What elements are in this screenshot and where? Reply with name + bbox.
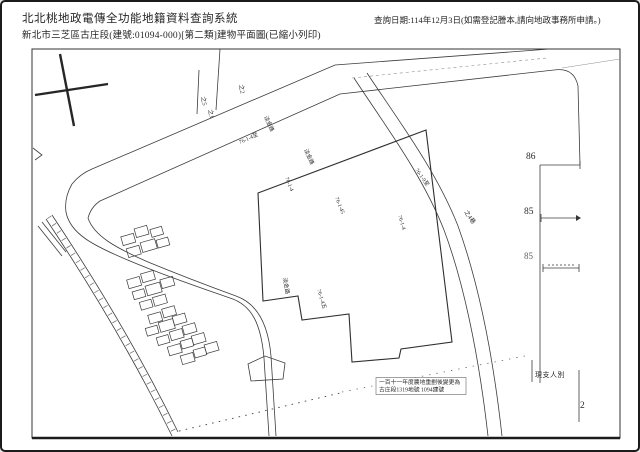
lot-number: 85 <box>524 251 534 261</box>
left-road <box>66 184 276 436</box>
building-cluster-c <box>141 297 220 372</box>
boundary-note: 現支人別 <box>535 370 565 379</box>
dotted-boundary <box>179 355 530 431</box>
street-name-label: 淡金路 <box>262 114 276 133</box>
small-parcel-outline <box>248 356 285 381</box>
main-parcel-outline <box>258 130 452 362</box>
address-range-label: 76-1-4至 <box>238 131 260 146</box>
street-name-label: 淡金路 <box>281 277 292 295</box>
replot-annotation: 一百十一年度農地重劃後變更為 古庄段1319地號 1094建號 <box>376 378 466 395</box>
address-label: 之5 <box>199 96 209 106</box>
street-name-label: 淡金路 <box>302 147 316 166</box>
building-cluster-a <box>120 221 170 258</box>
main-road <box>72 49 620 218</box>
lot-number-label: 76-1-4 <box>283 177 294 193</box>
lot-number-label: 76-1-4 <box>396 215 406 231</box>
annotation-line1: 一百十一年度農地重劃後變更為 <box>379 378 460 386</box>
lot-number-label: 76-1-4五 <box>315 288 328 310</box>
annotation-line2: 古庄段1319地號 1094建號 <box>379 386 444 394</box>
lot-number: 86 <box>526 152 536 162</box>
map-address-labels: 之5 之2 之1 76-1-4至 淡金路 淡金路 76-1-4 76-1-45 … <box>199 84 477 311</box>
lot-number: 85 <box>524 207 534 217</box>
cadastral-query-page: 北北桃地政電傳全功能地籍資料查詢系統 查詢日期:114年12月3日(如需登記謄本… <box>0 0 640 452</box>
lane-label: 之4巷 <box>462 209 477 226</box>
address-label: 之1 <box>206 108 216 119</box>
corner-number: 2 <box>580 401 585 411</box>
building-plan-map: 之5 之2 之1 76-1-4至 淡金路 淡金路 76-1-4 76-1-45 … <box>2 2 640 452</box>
lot-number-label: 76-1-45 <box>333 197 345 216</box>
right-boundary-detail: 86 85 85 現支人別 2 <box>524 152 585 422</box>
slope-hatch <box>33 148 178 436</box>
address-label: 之2 <box>237 84 247 94</box>
survey-cross-icon <box>35 54 108 126</box>
building-cluster-b <box>126 266 179 312</box>
